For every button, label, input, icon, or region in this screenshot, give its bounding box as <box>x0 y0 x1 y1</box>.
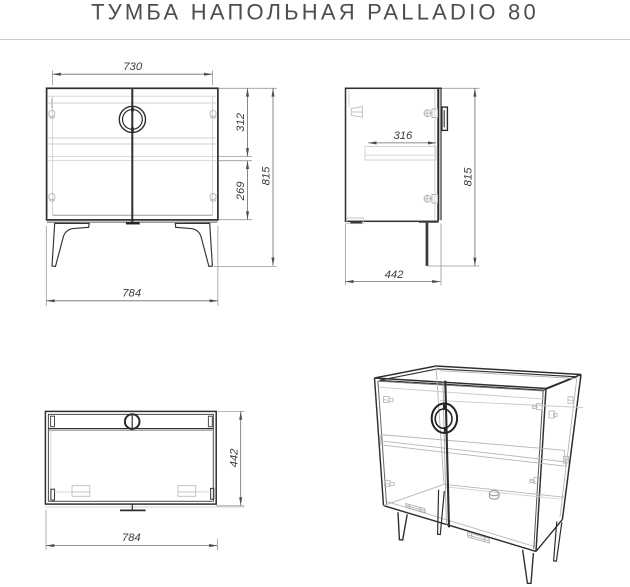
svg-text:ТУМБА НАПОЛЬНАЯ PALLADIO 80: ТУМБА НАПОЛЬНАЯ PALLADIO 80 <box>91 0 539 25</box>
svg-text:815: 815 <box>463 167 475 187</box>
svg-text:269: 269 <box>235 181 247 202</box>
svg-text:316: 316 <box>393 130 413 142</box>
svg-text:442: 442 <box>385 269 405 281</box>
svg-text:312: 312 <box>235 112 247 132</box>
svg-text:784: 784 <box>122 287 141 299</box>
svg-text:815: 815 <box>261 166 273 186</box>
svg-text:784: 784 <box>122 532 141 544</box>
svg-text:442: 442 <box>228 448 240 468</box>
svg-text:730: 730 <box>123 61 143 73</box>
